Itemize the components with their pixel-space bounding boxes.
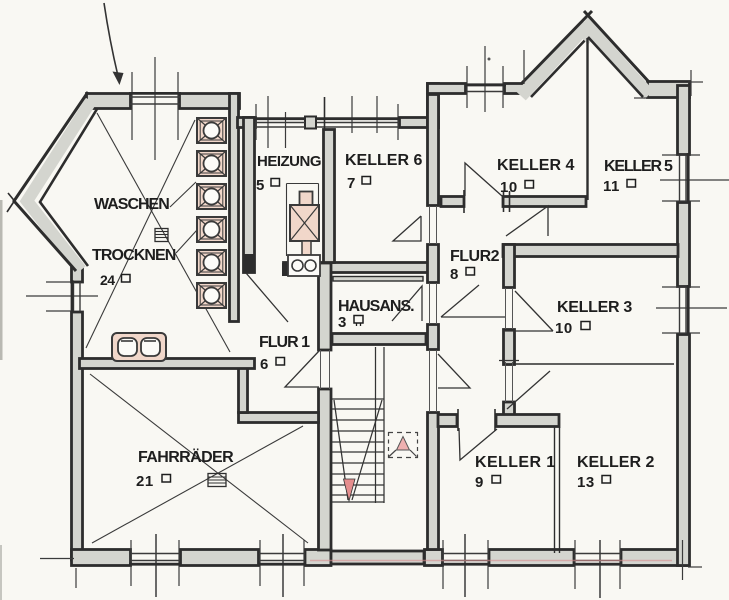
svg-text:HEIZUNG: HEIZUNG	[257, 153, 321, 170]
svg-text:KELLER 3: KELLER 3	[557, 299, 632, 316]
svg-text:5: 5	[256, 177, 265, 194]
svg-text:TROCKNEN: TROCKNEN	[92, 247, 176, 264]
svg-text:WASCHEN: WASCHEN	[94, 196, 169, 213]
svg-text:FLUR2: FLUR2	[450, 248, 500, 265]
svg-text:9: 9	[475, 474, 484, 491]
svg-text:6: 6	[260, 356, 269, 373]
svg-text:11: 11	[603, 178, 620, 195]
svg-text:21: 21	[136, 473, 154, 490]
svg-text:HAUSANS.: HAUSANS.	[338, 298, 414, 315]
svg-text:24: 24	[100, 272, 115, 288]
svg-text:KELLER 1: KELLER 1	[475, 454, 556, 471]
svg-text:10: 10	[500, 179, 518, 196]
svg-text:FAHRRÄDER: FAHRRÄDER	[138, 448, 234, 466]
svg-text:KELLER 2: KELLER 2	[577, 454, 654, 471]
svg-text:7: 7	[347, 175, 356, 192]
svg-text:13: 13	[577, 474, 595, 491]
svg-text:3: 3	[338, 314, 347, 331]
svg-text:8: 8	[450, 266, 459, 283]
svg-text:10: 10	[555, 320, 573, 337]
svg-text:KELLER 5: KELLER 5	[604, 158, 673, 175]
svg-text:FLUR 1: FLUR 1	[259, 334, 310, 351]
svg-text:KELLER 6: KELLER 6	[345, 152, 422, 169]
svg-text:KELLER 4: KELLER 4	[497, 157, 574, 174]
